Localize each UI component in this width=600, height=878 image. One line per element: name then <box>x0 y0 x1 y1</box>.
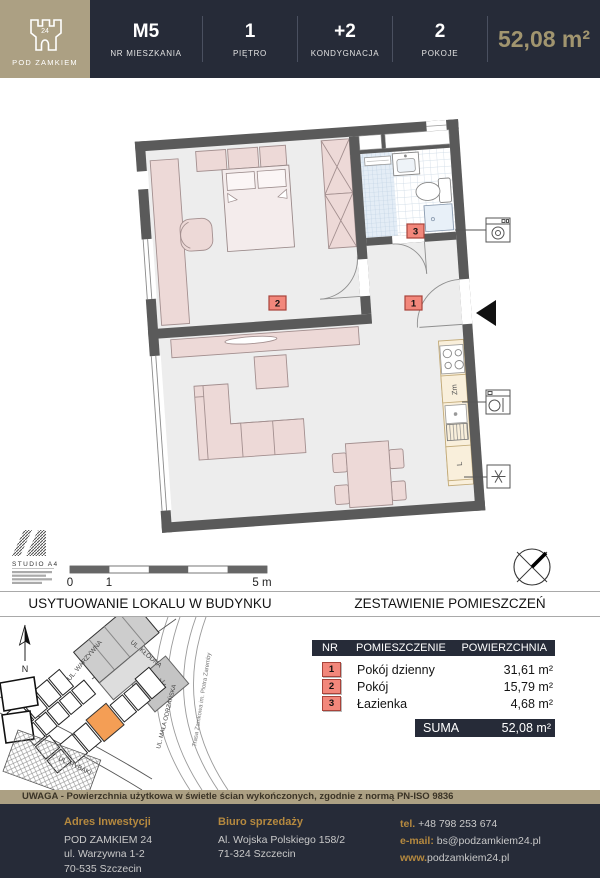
svg-text:STUDIO A4: STUDIO A4 <box>12 561 59 568</box>
room-table: NR POMIESZCZENIE POWIERZCHNIA 1 Pokój dz… <box>312 640 555 737</box>
stat-rooms: 2 POKOJE <box>393 0 487 78</box>
brand-name: POD ZAMKIEM <box>12 58 78 67</box>
svg-text:N: N <box>22 664 29 674</box>
stat-apartment-number: M5 NR MIESZKANIA <box>90 0 202 78</box>
table-header: NR POMIESZCZENIE POWIERZCHNIA <box>312 640 555 656</box>
compass-icon <box>514 549 550 585</box>
footer-email: e-mail: bs@podzamkiem24.pl <box>400 835 541 847</box>
room-name: Łazienka <box>357 697 407 711</box>
footer-line: ul. Warzywna 1-2 <box>64 847 152 862</box>
castle-icon: 24 <box>23 12 67 56</box>
room-area: 31,61 m² <box>504 663 553 677</box>
col-area: POWIERZCHNIA <box>461 640 547 656</box>
badge-room-3: 3 <box>407 224 424 238</box>
location-map: N <box>0 617 300 790</box>
north-arrow: N <box>20 625 31 674</box>
footer-www: www.podzamkiem24.pl <box>400 852 541 864</box>
scale-bar: 0 1 5 m <box>67 566 272 589</box>
svg-text:3: 3 <box>413 227 418 238</box>
footer-sales-title: Biuro sprzedaży <box>218 815 345 830</box>
table-row: 1 Pokój dzienny 31,61 m² <box>312 662 555 677</box>
washing-machine <box>424 204 454 232</box>
section-band: USYTUOWANIE LOKALU W BUDYNKU ZESTAWIENIE… <box>0 591 600 617</box>
footer-line: Al. Wojska Polskiego 158/2 <box>218 833 345 848</box>
table-row: 2 Pokój 15,79 m² <box>312 679 555 694</box>
under-sink-unit <box>446 423 468 440</box>
hob <box>440 344 465 374</box>
studio-logo: STUDIO A4 <box>12 530 59 584</box>
footer: Adres Inwestycji POD ZAMKIEM 24 ul. Warz… <box>0 804 600 878</box>
total-area: 52,08 m² <box>488 0 600 78</box>
badge-room-2: 2 <box>269 296 286 310</box>
washer-icon <box>486 218 510 242</box>
room-area: 4,68 m² <box>511 697 553 711</box>
section-title-location: USYTUOWANIE LOKALU W BUDYNKU <box>0 592 300 616</box>
sum-area: 52,08 m² <box>502 719 551 737</box>
sum-label: SUMA <box>423 719 459 737</box>
table-row: 3 Łazienka 4,68 m² <box>312 696 555 711</box>
svg-text:2: 2 <box>275 299 280 310</box>
bed <box>222 165 295 251</box>
col-room: POMIESZCZENIE <box>356 640 461 656</box>
footer-address-title: Adres Inwestycji <box>64 815 152 830</box>
badge-room-1: 1 <box>405 296 422 310</box>
footer-line: POD ZAMKIEM 24 <box>64 833 152 848</box>
dining-table <box>345 441 392 508</box>
brand-logo: 24 POD ZAMKIEM <box>0 0 90 78</box>
row-badge: 2 <box>322 679 341 694</box>
entrance-arrow <box>476 300 496 326</box>
col-nr: NR <box>322 640 356 656</box>
duct-shaft <box>359 135 382 151</box>
svg-text:L: L <box>455 461 464 466</box>
freezer-icon <box>487 465 510 488</box>
notice-bar: UWAGA - Powierzchnia użytkowa w świetle … <box>0 790 600 804</box>
svg-text:5 m: 5 m <box>252 577 271 589</box>
row-badge: 3 <box>322 696 341 711</box>
svg-text:1: 1 <box>106 577 112 589</box>
stat-floor: 1 PIĘTRO <box>203 0 297 78</box>
footer-sales-office: Biuro sprzedaży Al. Wojska Polskiego 158… <box>218 815 345 862</box>
row-badge: 1 <box>322 662 341 677</box>
section-title-rooms: ZESTAWIENIE POMIESZCZEŃ <box>300 592 600 616</box>
chair <box>332 453 347 473</box>
svg-text:Trasa Zamkowa im. Piotra Zarem: Trasa Zamkowa im. Piotra Zaremby <box>192 652 213 747</box>
coffee-table <box>254 355 288 389</box>
footer-contact: tel. +48 798 253 674 e-mail: bs@podzamki… <box>400 818 541 869</box>
oven-icon <box>486 390 510 414</box>
apartment-rotated-group: Zm L <box>132 119 486 533</box>
sum-bar: SUMA 52,08 m² <box>415 719 555 737</box>
flyer-page: 24 POD ZAMKIEM M5 NR MIESZKANIA 1 PIĘTRO… <box>0 0 600 878</box>
room-name: Pokój dzienny <box>357 663 435 677</box>
chair <box>389 449 404 469</box>
floor-plan: Zm L <box>0 78 600 591</box>
armchair <box>179 218 213 252</box>
stat-storeys: +2 KONDYGNACJA <box>298 0 392 78</box>
footer-address: Adres Inwestycji POD ZAMKIEM 24 ul. Warz… <box>64 815 152 876</box>
footer-line: 70-535 Szczecin <box>64 862 152 877</box>
chair <box>391 481 406 501</box>
svg-text:1: 1 <box>411 299 417 310</box>
svg-text:24: 24 <box>41 28 49 35</box>
footer-phone: tel. +48 798 253 674 <box>400 818 541 830</box>
svg-text:Zm: Zm <box>449 384 459 395</box>
footer-line: 71-324 Szczecin <box>218 847 345 862</box>
svg-text:0: 0 <box>67 577 73 589</box>
room-name: Pokój <box>357 680 388 694</box>
header-bar: 24 POD ZAMKIEM M5 NR MIESZKANIA 1 PIĘTRO… <box>0 0 600 78</box>
chair <box>334 485 349 505</box>
room-area: 15,79 m² <box>504 680 553 694</box>
